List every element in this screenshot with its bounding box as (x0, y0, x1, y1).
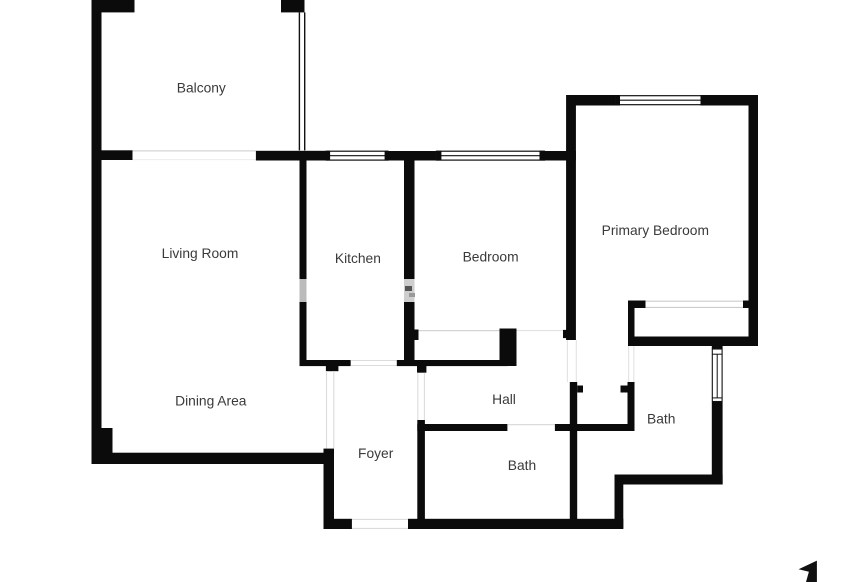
svg-text:Primary Bedroom: Primary Bedroom (602, 223, 709, 238)
svg-text:Bath: Bath (508, 458, 536, 473)
svg-text:Balcony: Balcony (177, 81, 226, 96)
svg-text:Living Room: Living Room (162, 246, 239, 261)
svg-text:Bedroom: Bedroom (463, 250, 519, 265)
svg-text:Kitchen: Kitchen (335, 251, 381, 266)
svg-text:Bath: Bath (647, 411, 675, 426)
svg-text:Dining Area: Dining Area (175, 394, 247, 409)
svg-text:Foyer: Foyer (358, 446, 394, 461)
svg-text:Hall: Hall (492, 392, 516, 407)
